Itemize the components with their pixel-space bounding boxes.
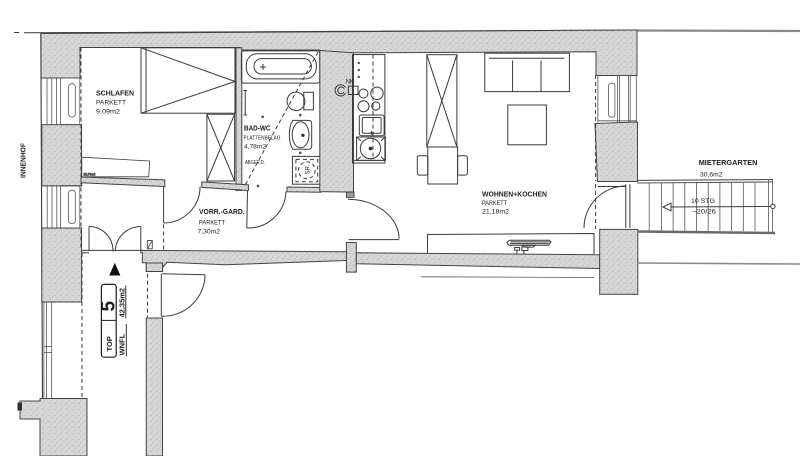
- svg-text:TOP: TOP: [105, 336, 114, 351]
- svg-text:5: 5: [99, 301, 120, 312]
- svg-text:42,35m2: 42,35m2: [118, 288, 127, 318]
- svg-text:9,09m2: 9,09m2: [96, 109, 120, 116]
- svg-text:30,6m2: 30,6m2: [700, 172, 723, 179]
- svg-text:INNENHOF: INNENHOF: [19, 142, 28, 178]
- svg-text:~20/26: ~20/26: [692, 209, 717, 216]
- svg-text:21,18m2: 21,18m2: [482, 209, 509, 216]
- svg-text:MIETERGARTEN: MIETERGARTEN: [699, 158, 758, 167]
- svg-text:ABGER.D.: ABGER.D.: [245, 160, 265, 166]
- svg-text:WOHNEN+KOCHEN: WOHNEN+KOCHEN: [482, 190, 547, 199]
- svg-text:PARKETT: PARKETT: [199, 220, 225, 227]
- svg-text:VORR.-GARD.: VORR.-GARD.: [199, 207, 245, 216]
- svg-text:NK: NK: [346, 79, 354, 85]
- svg-text:SCHLAFEN: SCHLAFEN: [96, 89, 134, 98]
- svg-text:WNFL: WNFL: [118, 333, 127, 355]
- svg-text:PLATTENBELAG: PLATTENBELAG: [244, 136, 281, 142]
- svg-text:10.Pfost: 10.Pfost: [83, 173, 95, 177]
- svg-text:BAD-WC: BAD-WC: [244, 124, 271, 133]
- svg-text:7,30m2: 7,30m2: [198, 229, 221, 236]
- svg-text:4,78m2: 4,78m2: [244, 143, 266, 150]
- svg-text:PARKETT: PARKETT: [96, 100, 126, 107]
- svg-text:PARKETT: PARKETT: [482, 200, 507, 207]
- svg-text:10 STG: 10 STG: [691, 198, 715, 205]
- svg-text:SR: SR: [306, 165, 312, 174]
